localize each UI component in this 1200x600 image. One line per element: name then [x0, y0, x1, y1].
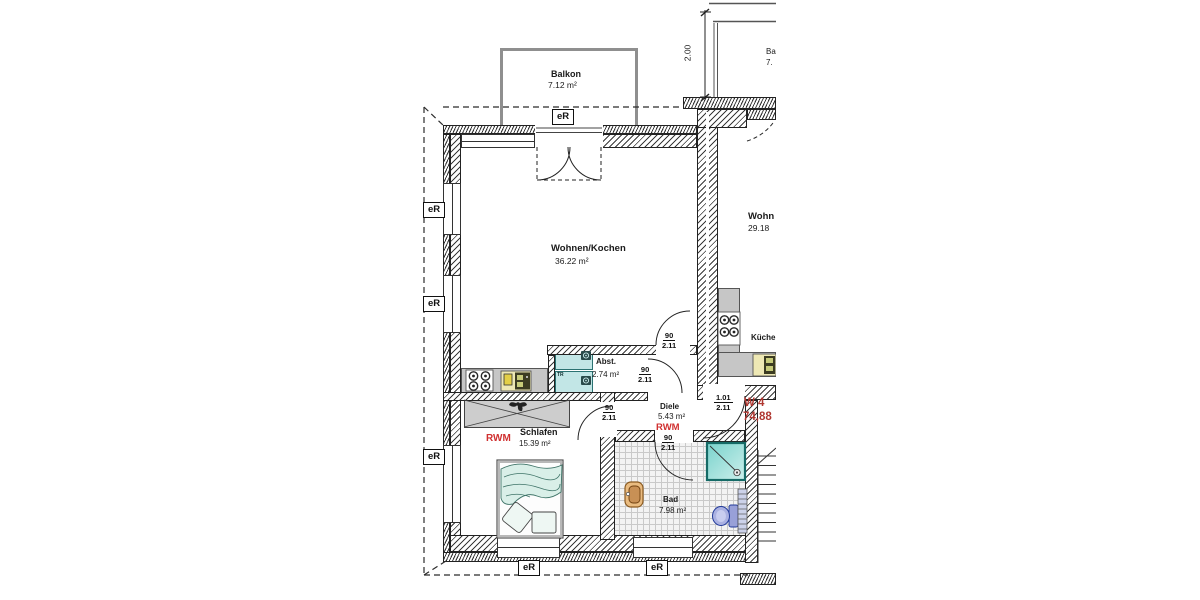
wall-bedroom-top: [443, 392, 648, 401]
shutter-marker-top: eR: [552, 109, 574, 125]
apartment-area: 74,88: [743, 411, 772, 423]
wall-storage-left: [548, 355, 555, 393]
neighbor-balcony-area: 7.: [766, 59, 773, 68]
neighbor-living-area: 29.18: [748, 224, 769, 233]
storage-door-arc: [648, 359, 682, 393]
window-left-2: [443, 275, 461, 333]
bed-pillow-2: [532, 512, 556, 533]
bed-pillow-1: [501, 501, 533, 533]
window-top: [461, 134, 535, 148]
shutter-marker-left-3: eR: [423, 449, 445, 465]
door-dim-bath: 90 2.11: [661, 433, 675, 452]
door-dim-bedroom: 90 2.11: [602, 403, 616, 422]
bedroom-smoke-detector: RWM: [486, 433, 511, 444]
neighbor-counter-bottom: [718, 352, 776, 377]
shutter-marker-bottom-2: eR: [646, 560, 668, 576]
storage-area: 2.74 m²: [592, 371, 619, 380]
apartment-id: W 4: [744, 397, 764, 409]
shutter-marker-bottom-1: eR: [518, 560, 540, 576]
door-dim-storage: 90 2.11: [638, 365, 652, 384]
dryer: TR: [555, 371, 593, 393]
door-dim-entry: 1.01 2.11: [714, 393, 733, 412]
neighbor-kitchen-name: Küche: [751, 334, 775, 343]
shutter-marker-left-2: eR: [423, 296, 445, 312]
balcony-door-opening: [535, 125, 603, 148]
bedroom-name: Schlafen: [520, 428, 558, 438]
wall-bottom-right-skin: [740, 573, 776, 585]
floor-plan: WM TR: [0, 0, 1200, 600]
bedroom-area: 15.39 m²: [519, 440, 551, 449]
door-dim-living-hall: 90 2.11: [662, 331, 676, 350]
neighbor-living-name: Wohn: [748, 212, 774, 222]
wall-bath-top-right: [693, 430, 745, 442]
kitchen-counter: [461, 368, 548, 393]
staircase: [758, 448, 776, 563]
neighbor-counter-vertical: [718, 288, 740, 354]
balcony-name: Balkon: [551, 70, 581, 80]
balcony-door-swing-icon: [537, 147, 601, 180]
balcony-area: 7.12 m²: [548, 81, 577, 90]
balcony-depth-dimension: 2.00: [682, 45, 692, 62]
neighbor-balcony-name: Ba: [766, 48, 776, 57]
bath-name: Bad: [663, 496, 678, 505]
window-left-3: [443, 445, 461, 523]
wardrobe: [464, 399, 570, 428]
living-kitchen-name: Wohnen/Kochen: [551, 244, 626, 254]
wall-neighbor-corner-skin: [683, 97, 776, 109]
window-bottom-bedroom: [497, 537, 560, 558]
dimension-line-200: [700, 9, 711, 101]
window-left-1: [443, 183, 461, 235]
hall-name: Diele: [660, 403, 679, 412]
bed: [497, 460, 563, 538]
hall-area: 5.43 m²: [658, 413, 685, 422]
bath-tile-floor: [613, 440, 745, 537]
wall-neighbor-corner-core: [697, 109, 747, 128]
living-kitchen-area: 36.22 m²: [555, 257, 589, 266]
wall-bottom-skin: [443, 552, 758, 562]
wall-bath-right: [745, 400, 758, 563]
wall-neighbor-corner-skin2: [747, 109, 776, 120]
wall-bath-top-left: [615, 430, 655, 442]
bath-area: 7.98 m²: [659, 507, 686, 516]
window-bottom-bath: [633, 537, 693, 558]
scan-crop-right: [776, 0, 1200, 600]
dryer-label: TR: [557, 373, 564, 378]
storage-name: Abst.: [596, 358, 616, 367]
shutter-marker-left-1: eR: [423, 202, 445, 218]
party-wall-gap: [706, 112, 709, 388]
neighbor-door-arc: [747, 123, 773, 141]
bed-duvet: [501, 464, 562, 504]
hall-smoke-detector: RWM: [656, 423, 680, 433]
